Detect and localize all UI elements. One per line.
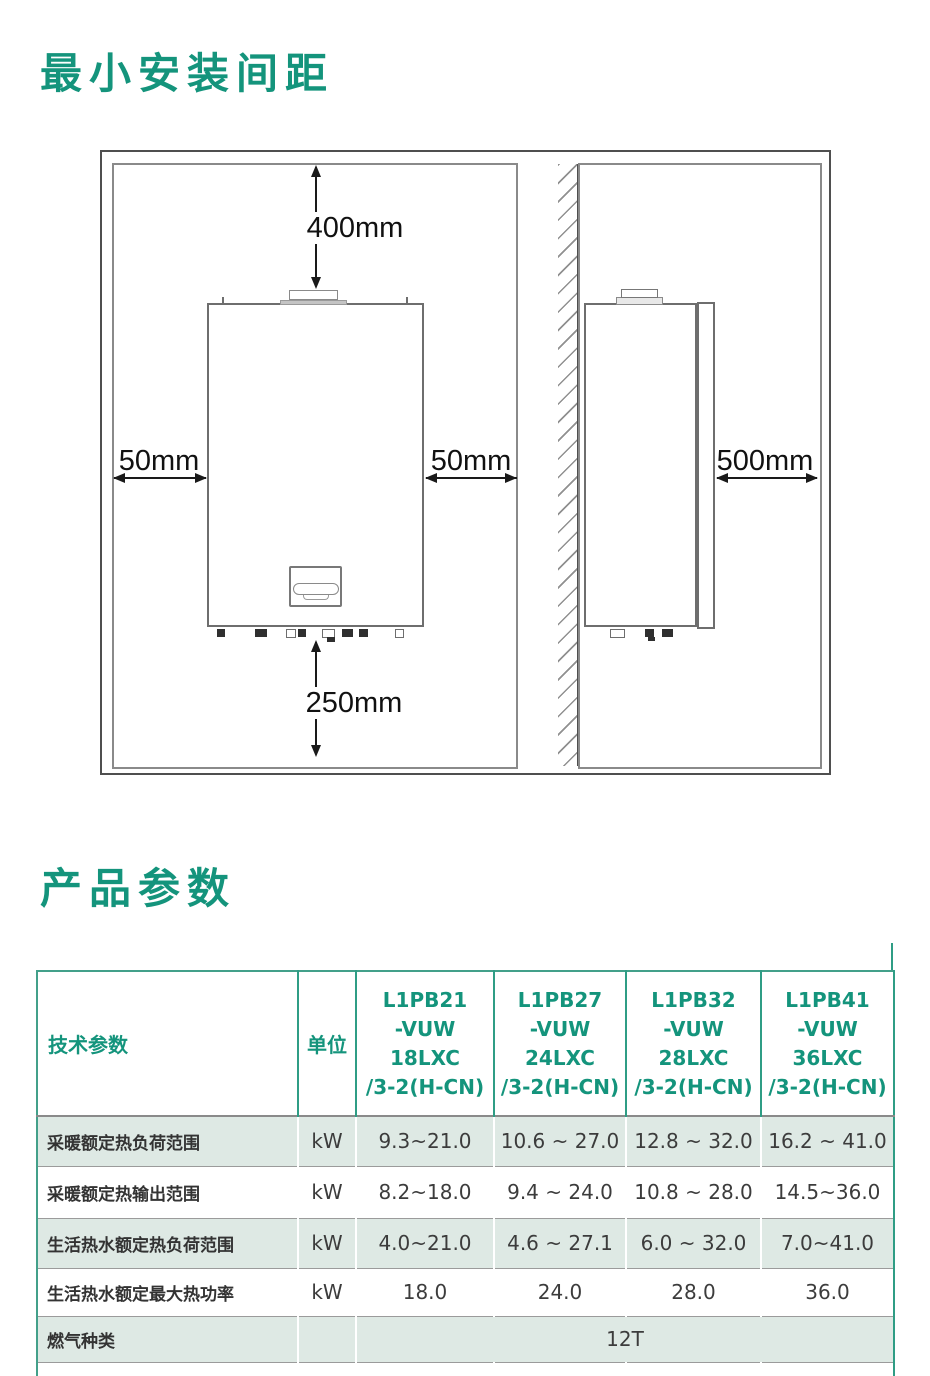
table-row: 采暖额定热输出范围 kW 8.2~18.0 9.4 ~ 24.0 10.8 ~ … — [37, 1166, 894, 1218]
param-label: 燃气种类 — [37, 1316, 298, 1362]
unit-cell: kW — [298, 1218, 356, 1268]
table-right-border-tick — [891, 943, 893, 970]
arrowhead-down-icon — [311, 745, 321, 757]
table-row: 燃气种类 12T — [37, 1316, 894, 1362]
param-label: 采暖额定热负荷范围 — [37, 1116, 298, 1166]
dimension-label-500mm: 500mm — [710, 445, 820, 477]
value-cell: 7.0~41.0 — [761, 1218, 894, 1268]
param-label: 生活热水额定最大热功率 — [37, 1268, 298, 1316]
wall-hatch-pattern — [558, 164, 577, 766]
value-cell: 18.0 — [356, 1268, 494, 1316]
boiler-side-flue — [621, 289, 658, 298]
value-cell: 36.0 — [761, 1268, 894, 1316]
dimension-label-400mm: 400mm — [303, 212, 407, 244]
table-row: 生活热水额定最大热功率 kW 18.0 24.0 28.0 36.0 — [37, 1268, 894, 1316]
unit-cell — [298, 1316, 356, 1362]
value-cell: 16.2 ~ 41.0 — [761, 1116, 894, 1166]
pipe-stub — [662, 629, 673, 637]
pipe-stub — [217, 629, 225, 637]
dimension-line — [717, 477, 817, 479]
drain-stub — [327, 637, 335, 642]
merged-value-cell: 12T — [356, 1316, 894, 1362]
table-row: 生活热水额定热负荷范围 kW 4.0~21.0 4.6 ~ 27.1 6.0 ~… — [37, 1218, 894, 1268]
boiler-top-tick — [222, 297, 224, 303]
boiler-side-view-body — [584, 303, 697, 627]
drain-stub — [648, 637, 655, 641]
arrowhead-down-icon — [311, 277, 321, 289]
value-cell: 9.4 ~ 24.0 — [494, 1166, 626, 1218]
pipe-stub — [395, 629, 404, 638]
pipe-stub — [610, 629, 625, 638]
param-label: 生活热水额定热负荷范围 — [37, 1218, 298, 1268]
header-model-2: L1PB27 -VUW 24LXC /3-2(H-CN) — [494, 971, 626, 1116]
value-cell: 14.5~36.0 — [761, 1166, 894, 1218]
header-model-1: L1PB21 -VUW 18LXC /3-2(H-CN) — [356, 971, 494, 1116]
boiler-top-tick — [406, 297, 408, 303]
spec-table: 技术参数 单位 L1PB21 -VUW 18LXC /3-2(H-CN) L1P… — [36, 970, 893, 1376]
installation-clearance-diagram: 400mm 50mm 50mm 500mm 250mm — [0, 0, 930, 800]
boiler-front-flue-base — [280, 300, 347, 305]
value-cell: 10.8 ~ 28.0 — [626, 1166, 761, 1218]
header-model-4: L1PB41 -VUW 36LXC /3-2(H-CN) — [761, 971, 894, 1116]
value-cell: 4.0~21.0 — [356, 1218, 494, 1268]
pipe-stub — [359, 629, 368, 637]
table-row: 采暖额定热负荷范围 kW 9.3~21.0 10.6 ~ 27.0 12.8 ~… — [37, 1116, 894, 1166]
unit-cell: kW — [298, 1268, 356, 1316]
product-parameters-title: 产品参数 — [40, 868, 236, 910]
unit-cell: kW — [298, 1166, 356, 1218]
value-cell: 6.0 ~ 32.0 — [626, 1218, 761, 1268]
value-cell: 28.0 — [626, 1268, 761, 1316]
pipe-stub — [645, 629, 654, 637]
boiler-side-flue-base — [616, 297, 663, 305]
dimension-label-50mm-left: 50mm — [117, 445, 201, 477]
value-cell: 24.0 — [494, 1268, 626, 1316]
value-cell: 12.8 ~ 32.0 — [626, 1116, 761, 1166]
pipe-stub — [255, 629, 267, 637]
header-model-3: L1PB32 -VUW 28LXC /3-2(H-CN) — [626, 971, 761, 1116]
arrowhead-up-icon — [311, 640, 321, 652]
pipe-stub — [342, 629, 353, 637]
dimension-line — [426, 477, 517, 479]
header-unit: 单位 — [298, 971, 356, 1116]
control-panel-handle-inner — [303, 595, 329, 600]
control-panel-handle — [293, 583, 339, 595]
value-cell: 9.3~21.0 — [356, 1116, 494, 1166]
product-detail-page: 最小安装间距 — [0, 0, 930, 1376]
pipe-stub — [286, 629, 296, 638]
dimension-label-250mm: 250mm — [300, 687, 408, 719]
boiler-front-flue — [289, 290, 338, 300]
pipe-stub — [298, 629, 306, 637]
arrowhead-up-icon — [311, 165, 321, 177]
dimension-line — [114, 477, 206, 479]
header-param: 技术参数 — [37, 971, 298, 1116]
unit-cell: kW — [298, 1116, 356, 1166]
table-row-clipped — [37, 1362, 894, 1376]
value-cell: 4.6 ~ 27.1 — [494, 1218, 626, 1268]
dimension-label-50mm-right: 50mm — [429, 445, 513, 477]
value-cell: 10.6 ~ 27.0 — [494, 1116, 626, 1166]
table-header-row: 技术参数 单位 L1PB21 -VUW 18LXC /3-2(H-CN) L1P… — [37, 971, 894, 1116]
param-label: 采暖额定热输出范围 — [37, 1166, 298, 1218]
value-cell: 8.2~18.0 — [356, 1166, 494, 1218]
